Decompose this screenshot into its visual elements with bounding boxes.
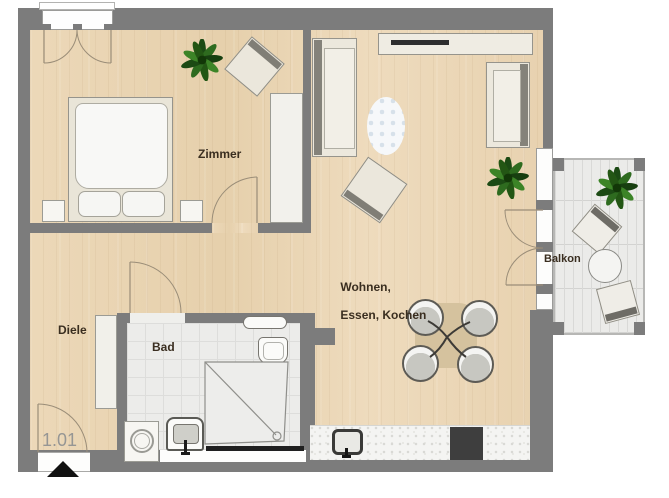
wall-right-upper [543,28,553,148]
hall-cabinet [95,315,117,409]
window-sill-exterior [39,2,115,10]
double-bed [68,97,173,222]
sink-faucet-icon [181,452,190,455]
toilet [258,337,288,364]
balcony-post [553,322,564,335]
pillow [78,191,121,217]
cooktop [450,427,483,460]
balcony-door-mullion [536,200,553,210]
window-mullion [42,24,51,30]
wall-zimmer-bottom [30,223,303,233]
room-label-wohnen-line1: Wohnen, [340,280,390,294]
sofa-right [486,62,530,148]
plant-icon [487,157,529,199]
balcony-post [634,322,645,335]
unit-number: 1.01 [42,430,77,451]
room-label-wohnen: Wohnen, Essen, Kochen [327,266,426,336]
room-label-wohnen-line2: Essen, Kochen [340,308,426,322]
washing-machine [124,421,159,462]
toilet-cistern [243,316,287,329]
floor-plan: Zimmer Wohnen, Essen, Kochen Diele Bad B… [0,0,669,498]
zimmer-door-opening [212,223,258,233]
window-mullion [104,24,113,30]
dining-chair [461,300,498,337]
pillow [122,191,165,217]
wall-left [18,8,30,472]
sideboard [378,33,533,55]
wardrobe [270,93,303,223]
room-label-bad: Bad [152,340,175,354]
nightstand [180,200,203,222]
faucet-icon [342,455,351,458]
plant-icon [181,39,223,81]
nightstand [42,200,65,222]
wall-right-lower [530,310,553,472]
tv-icon [391,40,449,45]
shower-screen [206,446,304,451]
dining-chair [402,345,439,382]
plant-icon [596,167,638,209]
balcony-table [588,249,622,283]
toilet-bowl [263,342,284,360]
balcony-door-mullion [536,242,553,252]
entrance-arrow-icon [47,461,79,477]
room-label-balkon: Balkon [544,253,581,265]
room-label-zimmer: Zimmer [198,147,241,161]
wall-zimmer-living [303,28,311,233]
duvet [75,103,168,189]
room-label-diele: Diele [58,323,87,337]
balcony-door-mullion [536,284,553,294]
sofa-left [312,38,357,157]
balcony-post [553,158,564,171]
bath-door-opening [130,313,185,323]
dining-chair [457,346,494,383]
window-mullion [73,24,82,30]
washing-machine-drum-inner [134,433,150,449]
rug [367,97,405,155]
